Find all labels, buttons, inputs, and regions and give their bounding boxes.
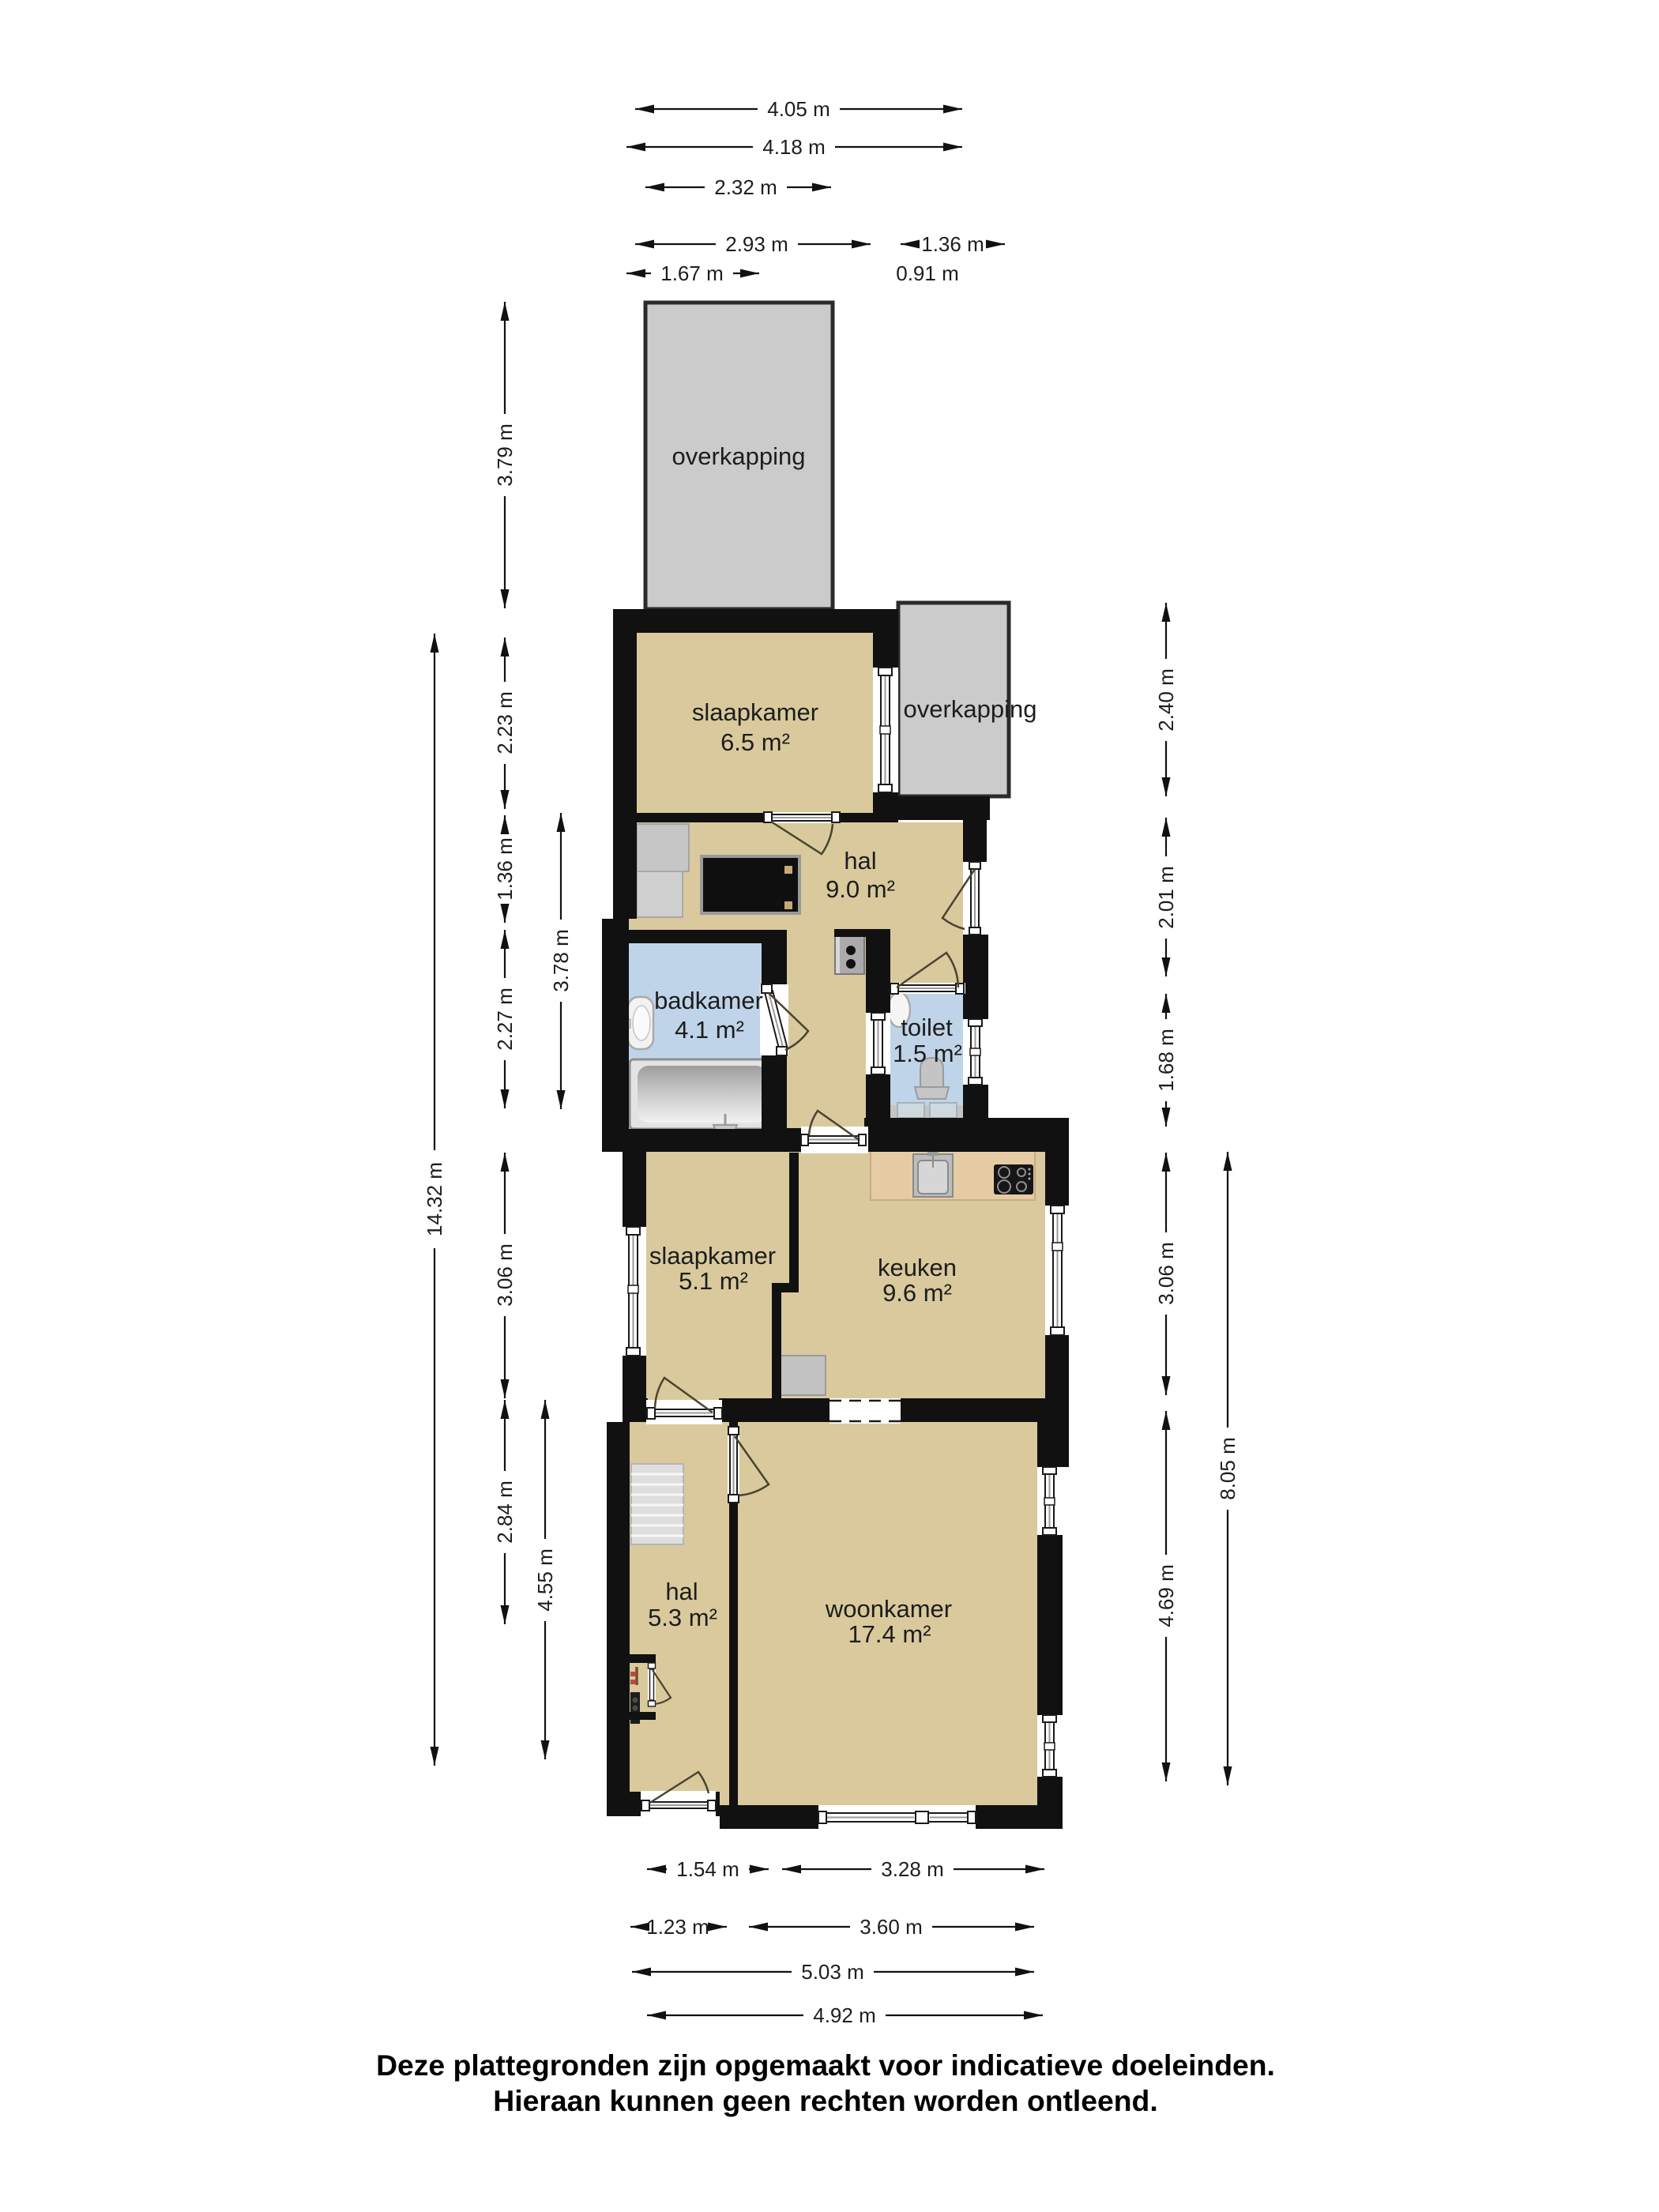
svg-text:0.91 m: 0.91 m xyxy=(896,261,959,285)
svg-text:1.5 m²: 1.5 m² xyxy=(893,1040,962,1067)
svg-text:woonkamer: woonkamer xyxy=(825,1595,952,1623)
svg-text:Deze plattegronden zijn opgema: Deze plattegronden zijn opgemaakt voor i… xyxy=(376,2048,1275,2082)
svg-text:4.1 m²: 4.1 m² xyxy=(675,1016,744,1044)
svg-text:3.06 m: 3.06 m xyxy=(1154,1242,1178,1305)
svg-text:9.6 m²: 9.6 m² xyxy=(882,1279,952,1307)
svg-text:2.93 m: 2.93 m xyxy=(725,232,788,256)
svg-text:2.84 m: 2.84 m xyxy=(493,1480,517,1544)
svg-text:hal: hal xyxy=(844,847,876,875)
svg-text:keuken: keuken xyxy=(878,1254,957,1281)
svg-text:1.54 m: 1.54 m xyxy=(676,1857,739,1881)
svg-text:3.28 m: 3.28 m xyxy=(881,1857,944,1881)
svg-text:2.23 m: 2.23 m xyxy=(493,691,517,754)
svg-text:toilet: toilet xyxy=(901,1014,953,1041)
svg-text:slaapkamer: slaapkamer xyxy=(649,1242,776,1270)
svg-text:badkamer: badkamer xyxy=(654,987,763,1014)
svg-text:1.36 m: 1.36 m xyxy=(493,837,517,901)
svg-text:5.3 m²: 5.3 m² xyxy=(648,1604,717,1631)
svg-text:6.5 m²: 6.5 m² xyxy=(720,728,790,756)
svg-text:4.69 m: 4.69 m xyxy=(1154,1564,1178,1627)
svg-text:2.40 m: 2.40 m xyxy=(1154,668,1178,732)
svg-text:slaapkamer: slaapkamer xyxy=(692,698,818,726)
svg-text:5.1 m²: 5.1 m² xyxy=(679,1267,748,1295)
svg-text:Hieraan kunnen geen rechten wo: Hieraan kunnen geen rechten worden ontle… xyxy=(493,2084,1157,2117)
svg-text:2.01 m: 2.01 m xyxy=(1154,866,1178,929)
svg-text:overkapping: overkapping xyxy=(672,442,806,470)
svg-text:17.4 m²: 17.4 m² xyxy=(848,1620,931,1648)
svg-text:3.60 m: 3.60 m xyxy=(860,1915,923,1939)
svg-text:4.05 m: 4.05 m xyxy=(767,97,830,121)
svg-text:4.55 m: 4.55 m xyxy=(533,1548,557,1612)
svg-text:14.32 m: 14.32 m xyxy=(423,1162,446,1236)
svg-text:3.06 m: 3.06 m xyxy=(493,1243,517,1307)
svg-text:1.68 m: 1.68 m xyxy=(1154,1029,1178,1092)
svg-text:2.27 m: 2.27 m xyxy=(493,987,517,1051)
svg-text:2.32 m: 2.32 m xyxy=(714,175,777,199)
svg-text:4.92 m: 4.92 m xyxy=(813,2003,876,2027)
svg-text:1.23 m: 1.23 m xyxy=(646,1915,709,1939)
svg-text:hal: hal xyxy=(665,1578,698,1605)
svg-text:8.05 m: 8.05 m xyxy=(1216,1437,1240,1500)
svg-text:1.36 m: 1.36 m xyxy=(921,232,984,256)
svg-text:1.67 m: 1.67 m xyxy=(660,261,724,285)
svg-text:9.0 m²: 9.0 m² xyxy=(826,875,895,903)
svg-text:3.79 m: 3.79 m xyxy=(493,423,517,487)
svg-text:3.78 m: 3.78 m xyxy=(549,929,573,992)
svg-text:4.18 m: 4.18 m xyxy=(762,135,826,159)
svg-text:overkapping: overkapping xyxy=(904,695,1037,723)
svg-text:5.03 m: 5.03 m xyxy=(801,1960,864,1984)
